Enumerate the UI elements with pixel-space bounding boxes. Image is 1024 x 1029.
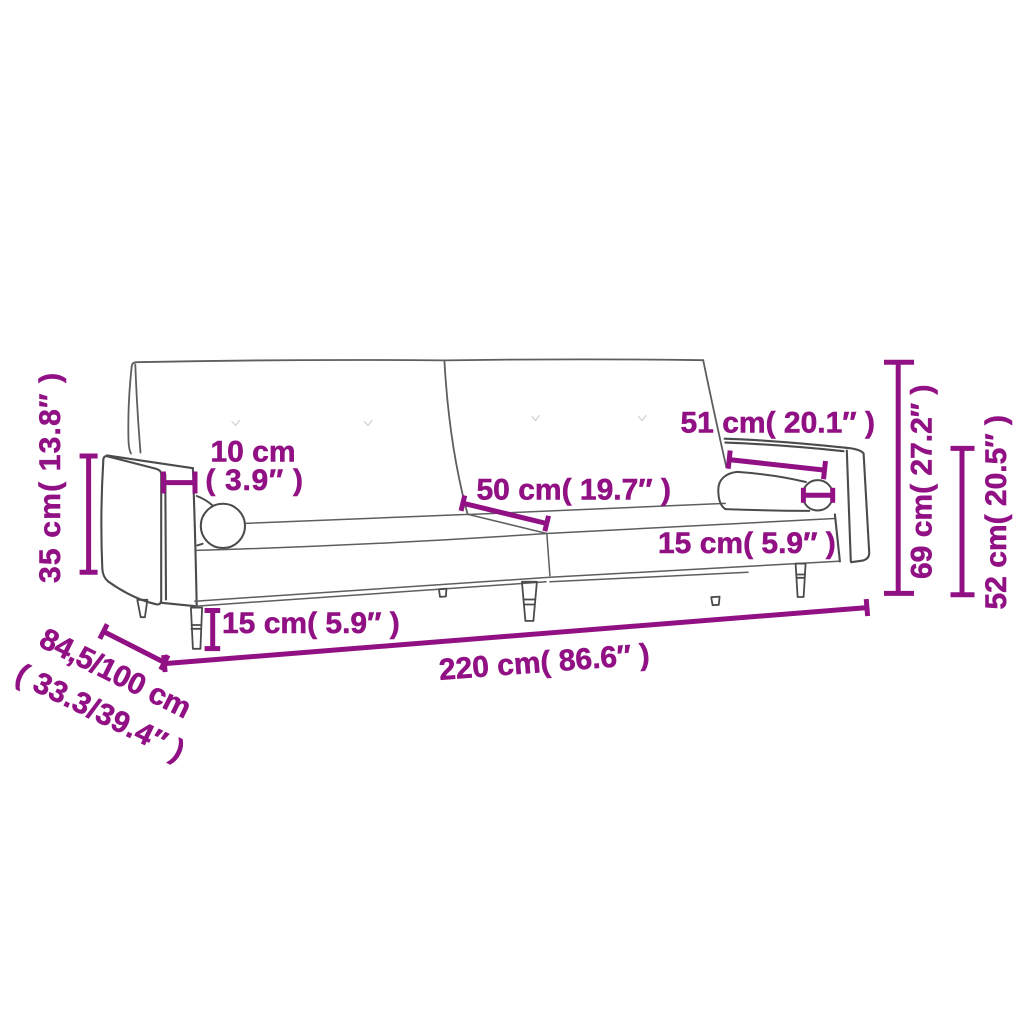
svg-text:35 cm( 13.8″ ): 35 cm( 13.8″ )	[34, 372, 67, 583]
svg-text:15 cm( 5.9″ ): 15 cm( 5.9″ )	[658, 527, 836, 560]
svg-text:52 cm( 20.5″ ): 52 cm( 20.5″ )	[980, 415, 1013, 609]
svg-text:69 cm( 27.2″ ): 69 cm( 27.2″ )	[906, 385, 939, 579]
svg-text:( 3.9″ ): ( 3.9″ )	[205, 464, 303, 497]
svg-text:15 cm( 5.9″ ): 15 cm( 5.9″ )	[222, 607, 400, 640]
svg-text:51 cm( 20.1″ ): 51 cm( 20.1″ )	[681, 407, 875, 440]
svg-text:50 cm( 19.7″ ): 50 cm( 19.7″ )	[477, 474, 671, 507]
